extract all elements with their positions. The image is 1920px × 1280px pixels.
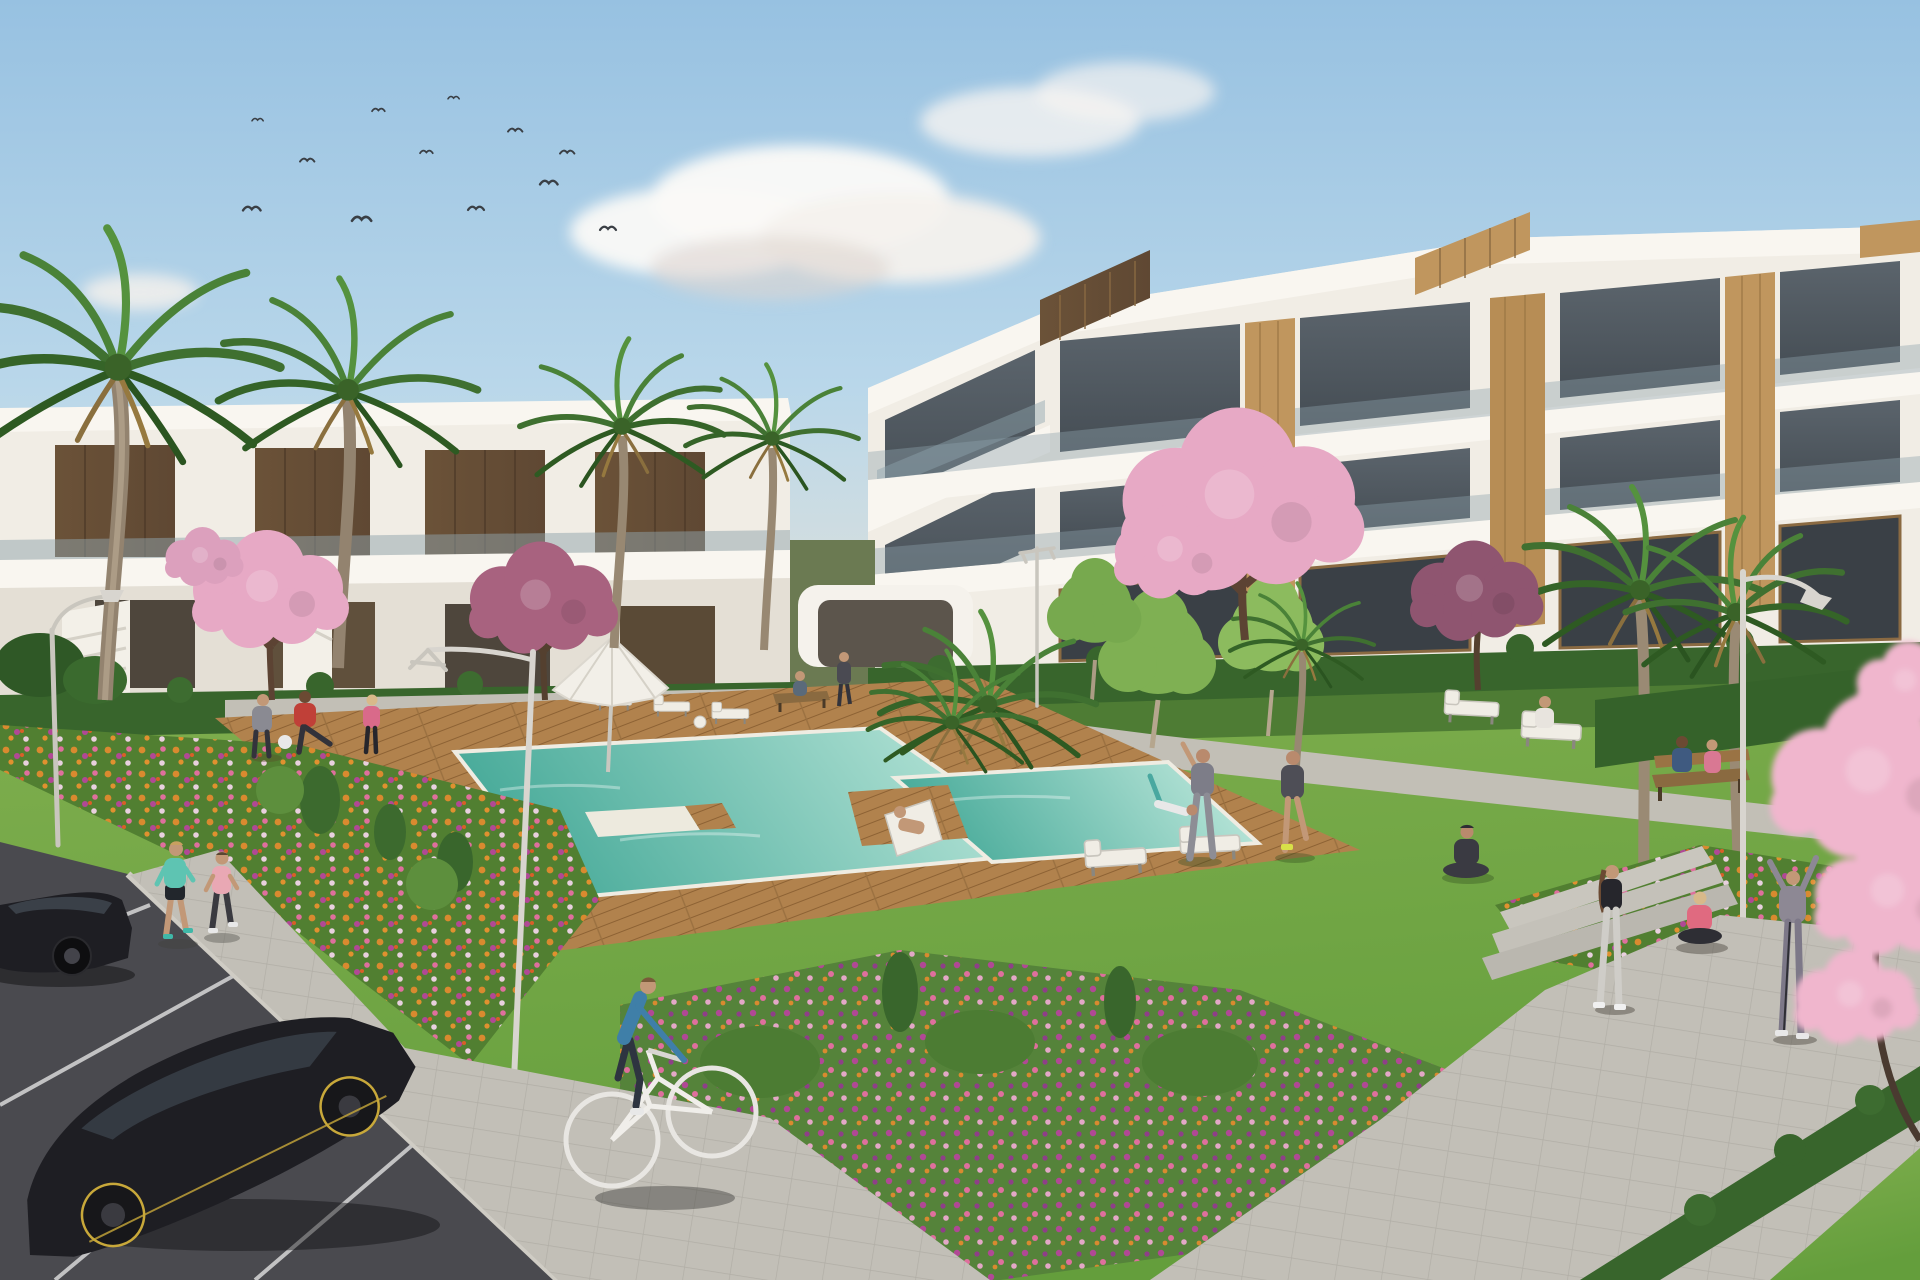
- car-sedan: [0, 892, 135, 987]
- scene-canvas: [0, 0, 1920, 1280]
- ball: [278, 735, 292, 749]
- architectural-rendering: [0, 0, 1920, 1280]
